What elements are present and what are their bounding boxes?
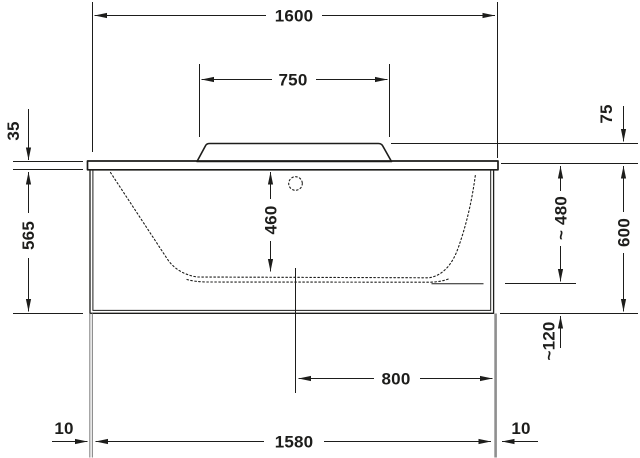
dim-label-35: 35 [4,121,23,140]
dim-approx-depth: ~ 480 [552,166,571,282]
rim [88,161,499,170]
bathtub-body [88,144,499,458]
dim-inner-depth: 460 [262,172,281,272]
dim-label-800: 800 [382,370,411,389]
dim-label-120: ~120 [540,321,559,360]
panel-inner-edge [93,170,491,310]
dim-drain-distance: 800 [296,268,493,393]
dim-floor-clearance: ~120 [540,316,561,361]
interior-contour-hidden-line [111,173,476,278]
dim-label-460: 460 [262,206,281,235]
dim-total-height: 600 [615,166,634,312]
dim-label-480: ~ 480 [552,196,571,240]
dim-label-75: 75 [597,104,616,123]
headrest [197,144,392,162]
overflow-hole [289,177,303,191]
dim-rim-thickness: 35 [4,109,29,160]
dim-label-1580: 1580 [275,433,314,452]
dim-label-600: 600 [615,218,634,247]
dim-body-height: 565 [19,172,38,312]
interior-bottom-hidden-line [187,279,450,283]
panel-outer-edge [90,170,494,313]
dim-label-1600: 1600 [275,7,314,26]
technical-drawing-canvas: 1600 750 35 565 [0,0,640,458]
dim-foot-inset-left: 10 [52,419,88,442]
dim-label-750: 750 [279,71,308,90]
dim-headrest-height: 75 [597,104,624,141]
dim-label-10-left: 10 [54,419,73,438]
dim-foot-inset-right: 10 [502,419,538,442]
dim-foot-spacing: 1580 [96,433,492,452]
bathtub-dimension-diagram: 1600 750 35 565 [0,0,640,458]
dim-label-10-right: 10 [511,419,530,438]
dim-label-565: 565 [19,221,38,250]
dim-backrest-width: 750 [200,64,390,137]
